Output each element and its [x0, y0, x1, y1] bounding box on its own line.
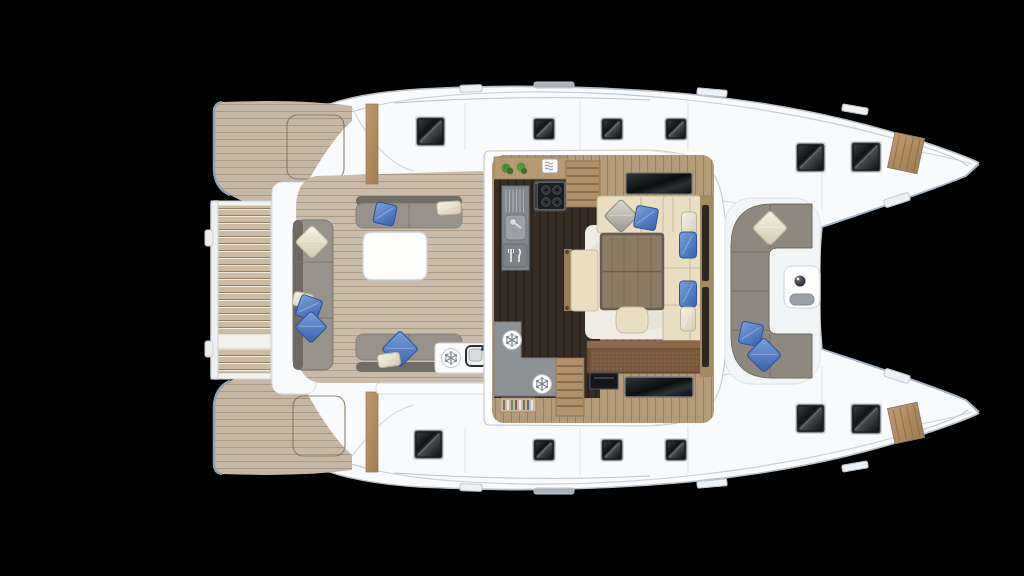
- blue-pillow: [680, 232, 697, 258]
- dining-side-bench: [564, 249, 598, 311]
- console-object: [795, 276, 806, 287]
- cockpit-table: [363, 232, 427, 280]
- tv-forward: [626, 173, 692, 194]
- ottoman: [616, 307, 648, 333]
- dining-table: [601, 234, 663, 309]
- deck-fitting: [460, 484, 482, 492]
- blue-pillow: [680, 281, 697, 307]
- cockpit-step: [376, 383, 497, 394]
- wine-rack: [500, 398, 536, 412]
- galley-sink-unit: [502, 186, 529, 270]
- fridge-snowflake-icon: [442, 349, 461, 368]
- deck-hatch: [664, 117, 688, 141]
- av-unit: [590, 373, 618, 389]
- platform-hinge-bottom: [205, 341, 213, 357]
- cream-pillow: [377, 352, 401, 368]
- deck-hatch: [532, 438, 556, 462]
- floorplan-svg: [0, 0, 1024, 576]
- blue-pillow: [373, 202, 398, 227]
- tv-aft: [625, 377, 693, 397]
- deck-fitting: [842, 104, 869, 115]
- fridge-snowflake-icon: [503, 331, 522, 350]
- deck-fitting: [534, 488, 574, 494]
- dishwasher-icon: [503, 244, 527, 267]
- deck-hatch: [850, 403, 882, 435]
- saloon-front-window-band: [700, 195, 713, 377]
- cream-pillow: [681, 307, 696, 331]
- deck-hatch: [600, 117, 624, 141]
- deck-fitting: [460, 85, 482, 93]
- platform-hinge-top: [205, 230, 213, 246]
- deck-hatch: [795, 142, 826, 173]
- deck-fitting: [534, 82, 574, 88]
- deck-fitting: [842, 461, 869, 472]
- microwave-icon: [542, 159, 558, 173]
- deck-hatch: [664, 438, 688, 462]
- deck-hatch: [532, 117, 556, 141]
- swim-platform-slats-upper: [216, 206, 278, 334]
- cream-pillow: [437, 201, 462, 216]
- deck-hatch: [600, 438, 624, 462]
- stove-icon: [534, 181, 566, 211]
- stairs-starboard: [556, 358, 584, 416]
- console-tray: [790, 294, 814, 305]
- swim-platform: [205, 201, 283, 379]
- side-step-wood-bottom: [366, 392, 378, 472]
- foredeck-console: [784, 266, 820, 308]
- deck-hatch: [413, 429, 444, 460]
- fridge-snowflake-icon: [533, 375, 552, 394]
- front-blind-upper: [702, 205, 709, 281]
- galley-top-counter: [494, 157, 568, 179]
- deck-hatch: [795, 403, 826, 434]
- catamaran-floorplan-canvas: [0, 0, 1024, 576]
- front-blind-lower: [702, 287, 709, 367]
- stairs-port: [566, 161, 600, 207]
- galley-sink-bowl: [505, 215, 526, 240]
- deck-hatch: [415, 116, 446, 147]
- deck-hatch: [850, 141, 882, 173]
- blue-pillow: [633, 205, 658, 230]
- aft-sideboard: [587, 341, 703, 373]
- side-step-wood-top: [366, 104, 378, 184]
- swim-platform-slats-lower: [216, 349, 278, 373]
